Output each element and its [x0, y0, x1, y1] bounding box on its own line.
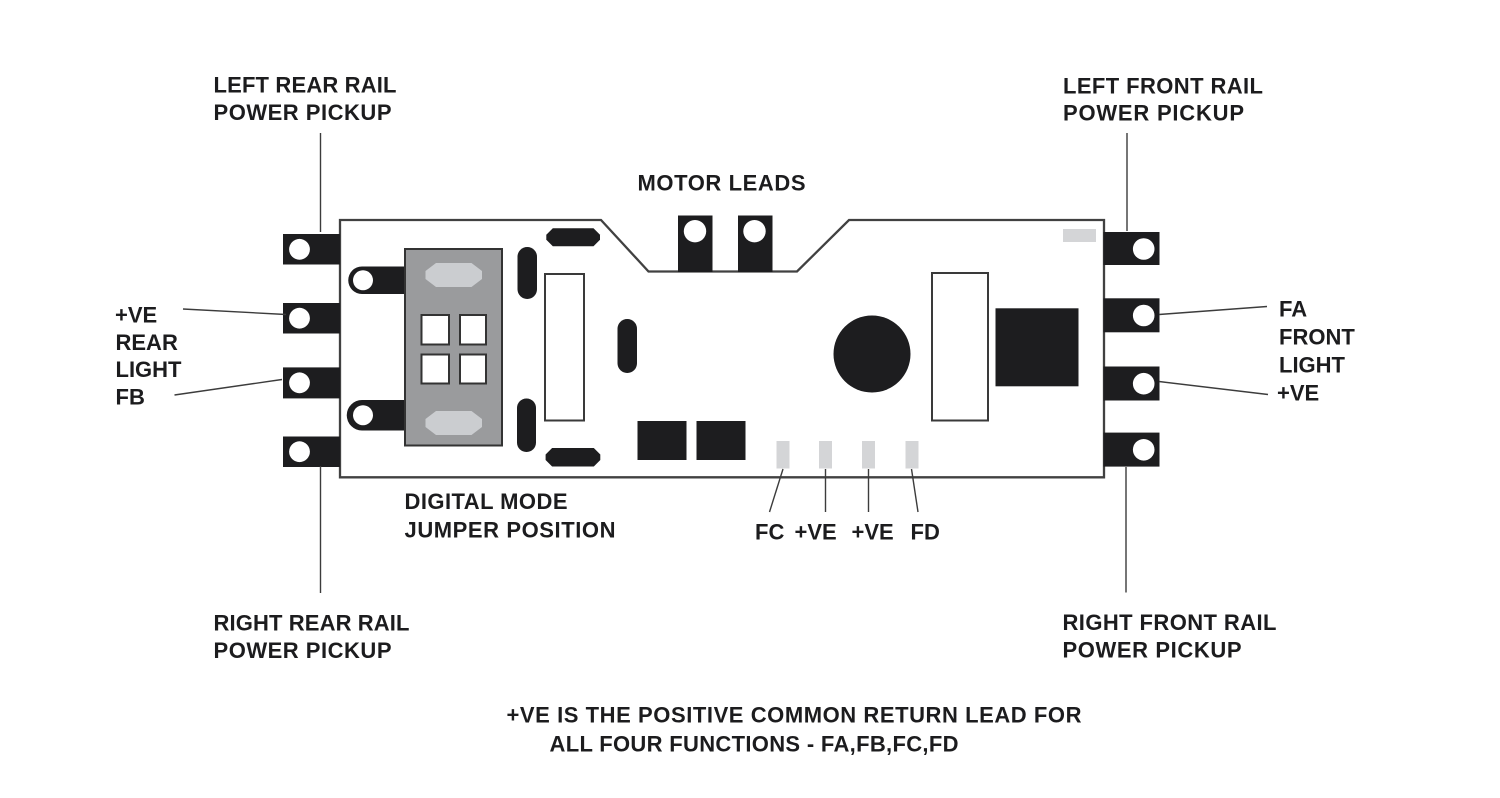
svg-text:FB: FB	[116, 385, 145, 410]
svg-text:JUMPER POSITION: JUMPER POSITION	[405, 518, 616, 543]
svg-text:LIGHT: LIGHT	[116, 357, 183, 382]
svg-text:RIGHT FRONT RAIL: RIGHT FRONT RAIL	[1063, 610, 1277, 635]
svg-text:+VE: +VE	[115, 303, 157, 328]
svg-text:POWER PICKUP: POWER PICKUP	[1063, 101, 1244, 126]
svg-text:+VE: +VE	[852, 520, 894, 545]
svg-text:POWER PICKUP: POWER PICKUP	[214, 638, 392, 663]
svg-text:+VE IS THE POSITIVE COMMON RET: +VE IS THE POSITIVE COMMON RETURN LEAD F…	[507, 703, 1082, 728]
svg-text:FD: FD	[911, 520, 940, 545]
svg-text:DIGITAL MODE: DIGITAL MODE	[405, 489, 568, 514]
svg-text:LEFT REAR RAIL: LEFT REAR RAIL	[214, 73, 397, 98]
svg-text:POWER PICKUP: POWER PICKUP	[214, 100, 392, 125]
svg-text:LEFT FRONT RAIL: LEFT FRONT RAIL	[1063, 74, 1263, 99]
svg-text:LIGHT: LIGHT	[1279, 353, 1346, 378]
svg-text:FRONT: FRONT	[1279, 325, 1355, 350]
svg-text:POWER PICKUP: POWER PICKUP	[1063, 638, 1242, 663]
svg-text:FA: FA	[1279, 297, 1307, 322]
svg-text:RIGHT REAR RAIL: RIGHT REAR RAIL	[214, 611, 410, 636]
svg-text:ALL FOUR FUNCTIONS - FA,FB,FC,: ALL FOUR FUNCTIONS - FA,FB,FC,FD	[550, 732, 959, 757]
svg-text:FC: FC	[755, 520, 784, 545]
svg-text:+VE: +VE	[1277, 381, 1319, 406]
svg-text:+VE: +VE	[795, 520, 837, 545]
svg-text:MOTOR LEADS: MOTOR LEADS	[638, 171, 806, 196]
svg-text:REAR: REAR	[116, 330, 178, 355]
